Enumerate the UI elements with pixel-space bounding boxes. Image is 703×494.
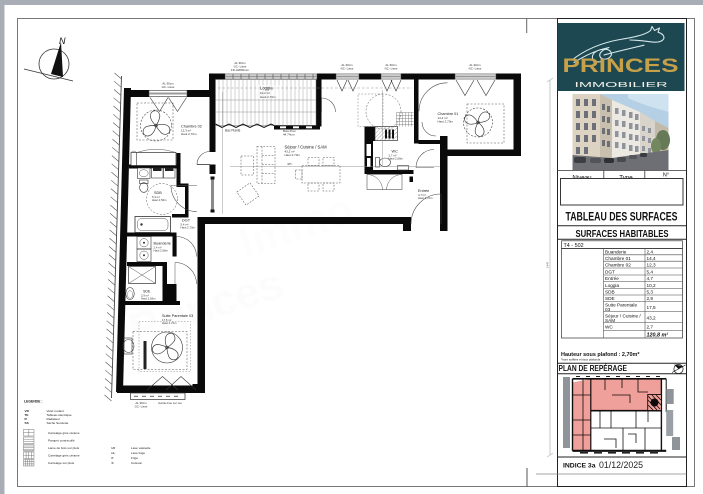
- svg-text:TABLEAU DES SURFACES: TABLEAU DES SURFACES: [566, 210, 678, 224]
- svg-text:Haut 2,70m: Haut 2,70m: [162, 321, 177, 325]
- svg-text:N: N: [59, 36, 66, 46]
- svg-text:LEGENDE :: LEGENDE :: [24, 400, 42, 404]
- svg-text:485: 485: [287, 162, 292, 166]
- svg-text:SS: SS: [25, 421, 29, 425]
- svg-text:Lame de bois sur plots: Lame de bois sur plots: [48, 446, 80, 450]
- svg-text:2,4: 2,4: [647, 249, 654, 254]
- svg-text:2,9: 2,9: [647, 296, 654, 301]
- svg-text:Carrelage grès cérame: Carrelage grès cérame: [48, 454, 80, 458]
- svg-text:IMMOBILIER: IMMOBILIER: [575, 80, 669, 89]
- svg-text:LL: LL: [112, 451, 116, 455]
- svg-text:NC- Lisse: NC- Lisse: [385, 67, 398, 71]
- svg-text:Parquet contrecollé: Parquet contrecollé: [48, 439, 75, 443]
- svg-text:Haut 2,70m: Haut 2,70m: [438, 119, 454, 123]
- svg-text:Cuisson: Cuisson: [131, 461, 142, 465]
- svg-text:Carrelage grès cérame: Carrelage grès cérame: [48, 431, 80, 435]
- svg-text:Buanderie: Buanderie: [605, 249, 627, 254]
- svg-text:Frigo: Frigo: [131, 456, 138, 460]
- svg-text:Bac Planté: Bac Planté: [225, 129, 241, 133]
- svg-text:10,2: 10,2: [647, 283, 657, 288]
- svg-text:Garde-Fou sur rue: Garde-Fou sur rue: [158, 401, 182, 405]
- svg-text:SDE: SDE: [605, 296, 615, 301]
- svg-text:5,4: 5,4: [647, 269, 654, 274]
- svg-text:Haut 2,56m: Haut 2,56m: [389, 156, 404, 160]
- svg-text:GC- Lisse: GC- Lisse: [135, 405, 148, 409]
- svg-text:Lave vaisselle: Lave vaisselle: [131, 446, 151, 450]
- svg-text:F: F: [112, 456, 114, 460]
- svg-text:Haut 2,70m: Haut 2,70m: [181, 132, 197, 136]
- svg-text:17,5: 17,5: [647, 305, 657, 310]
- svg-text:Haut 2,70m: Haut 2,70m: [285, 153, 301, 157]
- svg-text:43,2: 43,2: [647, 316, 657, 321]
- svg-text:Haut 2,56m: Haut 2,56m: [154, 249, 169, 253]
- svg-text:Haut 2,70m: Haut 2,70m: [181, 225, 196, 229]
- svg-text:4,7: 4,7: [647, 276, 654, 281]
- svg-text:Haut 2,56m: Haut 2,56m: [152, 198, 167, 202]
- svg-text:SAM: SAM: [605, 318, 615, 323]
- svg-text:DGT: DGT: [605, 269, 615, 274]
- svg-text:5,3: 5,3: [647, 289, 654, 294]
- svg-text:FD-H2600mm: FD-H2600mm: [231, 68, 250, 72]
- svg-text:PRINCES: PRINCES: [563, 56, 679, 77]
- svg-text:N°: N°: [663, 173, 669, 179]
- svg-text:WC: WC: [605, 325, 613, 330]
- svg-text:INDICE 3a: INDICE 3a: [563, 462, 596, 469]
- svg-text:Entrée: Entrée: [605, 276, 619, 281]
- svg-text:SURFACES HABITABLES: SURFACES HABITABLES: [576, 229, 669, 240]
- svg-text:PLAN DE REPÉRAGE: PLAN DE REPÉRAGE: [559, 363, 628, 373]
- svg-text:*hors soffites et faux plafond: *hors soffites et faux plafonds: [561, 358, 601, 362]
- svg-text:NC- Lisse: NC- Lisse: [341, 67, 354, 71]
- svg-text:2,7: 2,7: [647, 325, 654, 330]
- svg-text:SDB: SDB: [605, 289, 615, 294]
- svg-text:14,4: 14,4: [647, 256, 657, 261]
- svg-text:Loggia: Loggia: [605, 283, 619, 288]
- svg-text:NC- Lisse: NC- Lisse: [469, 67, 482, 71]
- svg-text:T4 - 502: T4 - 502: [564, 243, 584, 249]
- svg-text:Chambre 01: Chambre 01: [605, 256, 631, 261]
- svg-text:GC- Lisse: GC- Lisse: [162, 85, 175, 89]
- svg-text:01/12/2025: 01/12/2025: [599, 460, 643, 470]
- svg-text:Haut 2,70m: Haut 2,70m: [260, 95, 276, 99]
- svg-text:03: 03: [605, 307, 611, 312]
- svg-text:1447: 1447: [546, 261, 550, 268]
- svg-text:Sèche Serviette: Sèche Serviette: [47, 421, 69, 425]
- svg-text:Carrelage sur plots: Carrelage sur plots: [48, 461, 75, 465]
- svg-text:44.74cm: 44.74cm: [283, 132, 295, 136]
- svg-text:12,3: 12,3: [647, 262, 657, 267]
- svg-text:Haut 2,56m: Haut 2,56m: [141, 296, 156, 300]
- svg-text:Loggia: Loggia: [260, 86, 273, 91]
- svg-text:120,8 m²: 120,8 m²: [647, 332, 669, 338]
- svg-text:Chambre 02: Chambre 02: [605, 262, 631, 267]
- svg-text:Lave linge: Lave linge: [131, 451, 145, 455]
